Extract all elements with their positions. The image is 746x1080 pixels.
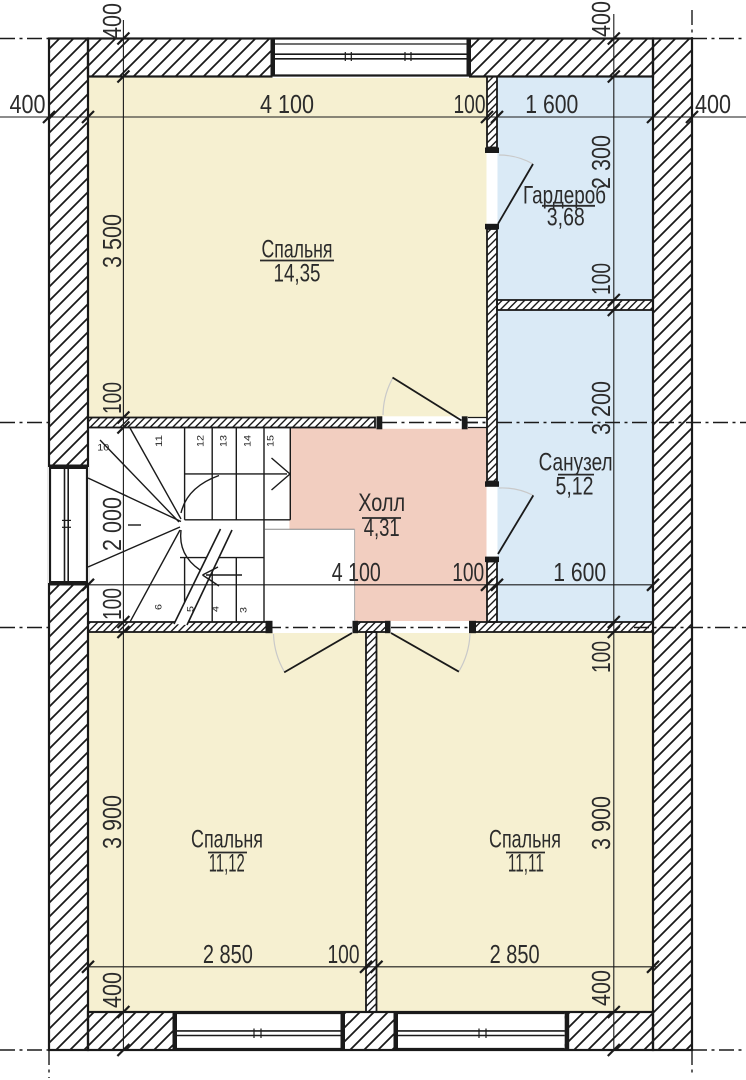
svg-text:400: 400 (97, 3, 127, 39)
svg-text:100: 100 (454, 89, 486, 119)
svg-text:12: 12 (196, 435, 207, 447)
svg-text:400: 400 (10, 89, 46, 119)
svg-text:400: 400 (586, 970, 616, 1006)
svg-text:Холл: Холл (358, 489, 405, 517)
svg-text:100: 100 (97, 588, 127, 620)
svg-text:11,12: 11,12 (209, 850, 245, 878)
svg-text:3: 3 (239, 607, 250, 613)
svg-text:14: 14 (243, 435, 254, 447)
svg-text:1 600: 1 600 (525, 89, 578, 119)
svg-text:400: 400 (97, 972, 127, 1008)
svg-text:3 900: 3 900 (97, 795, 127, 849)
svg-text:1 600: 1 600 (553, 557, 606, 587)
svg-text:3 200: 3 200 (586, 381, 616, 435)
svg-text:100: 100 (586, 263, 616, 295)
svg-text:4,31: 4,31 (364, 514, 400, 542)
svg-text:100: 100 (452, 557, 484, 587)
svg-text:100: 100 (328, 939, 360, 969)
svg-text:4: 4 (211, 606, 222, 612)
svg-text:100: 100 (97, 382, 127, 414)
svg-text:100: 100 (586, 641, 616, 673)
svg-text:14,35: 14,35 (274, 260, 321, 288)
svg-text:4 100: 4 100 (260, 89, 314, 119)
svg-text:400: 400 (695, 89, 731, 119)
svg-text:2 000: 2 000 (97, 497, 127, 551)
svg-text:11: 11 (154, 435, 165, 447)
svg-text:3,68: 3,68 (547, 204, 585, 232)
svg-text:4 100: 4 100 (332, 557, 381, 587)
svg-text:13: 13 (219, 435, 230, 447)
svg-text:6: 6 (154, 604, 165, 610)
svg-text:2 850: 2 850 (203, 939, 253, 969)
svg-text:400: 400 (586, 1, 616, 37)
svg-text:5: 5 (186, 606, 197, 612)
svg-text:5,12: 5,12 (556, 473, 594, 501)
svg-text:10: 10 (97, 443, 109, 454)
svg-text:3 900: 3 900 (586, 796, 616, 850)
svg-text:2 850: 2 850 (490, 939, 540, 969)
svg-text:11,11: 11,11 (508, 850, 544, 878)
svg-text:3 500: 3 500 (97, 214, 127, 268)
svg-text:15: 15 (266, 435, 277, 447)
